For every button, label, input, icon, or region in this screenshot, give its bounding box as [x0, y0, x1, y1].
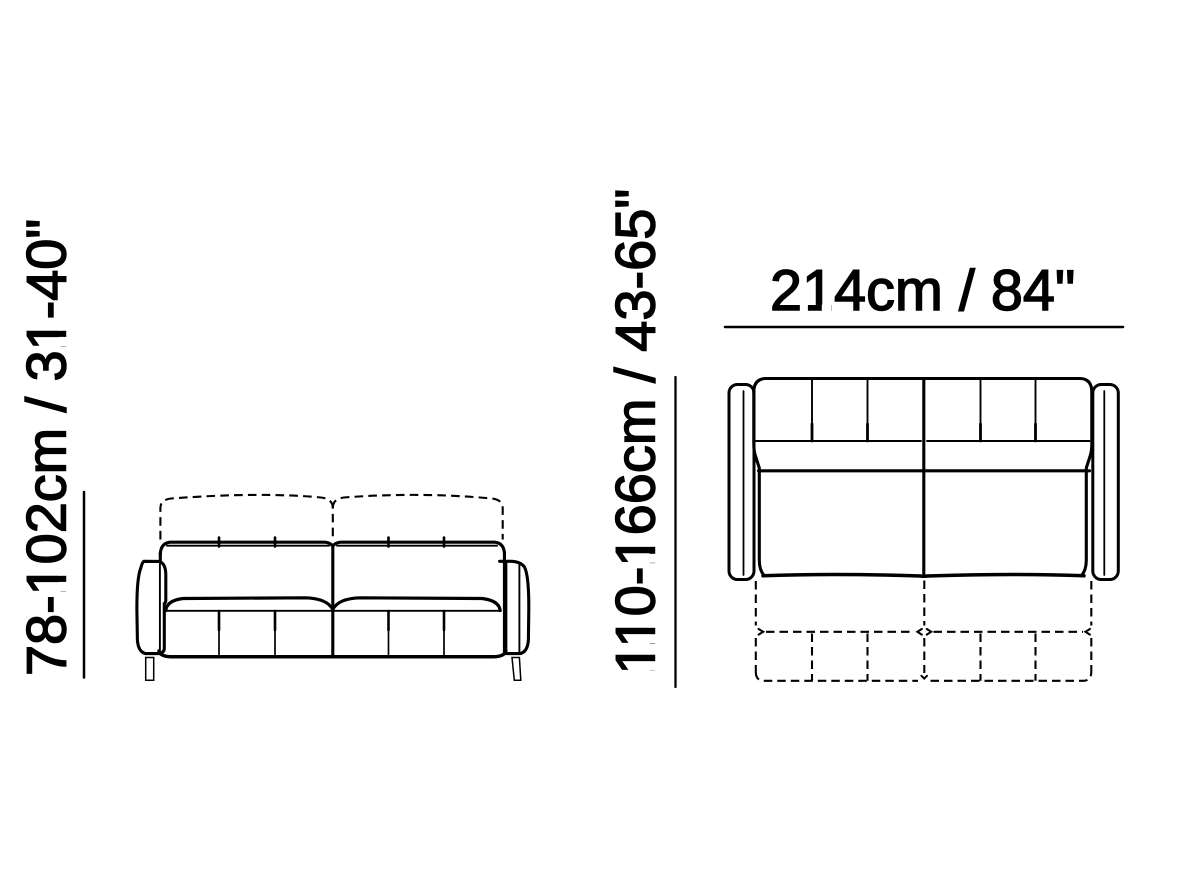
- svg-text:214cm / 84": 214cm / 84": [770, 259, 1075, 323]
- svg-text:78-102cm / 31-40": 78-102cm / 31-40": [15, 219, 78, 676]
- svg-text:110-166cm / 43-65": 110-166cm / 43-65": [604, 189, 667, 675]
